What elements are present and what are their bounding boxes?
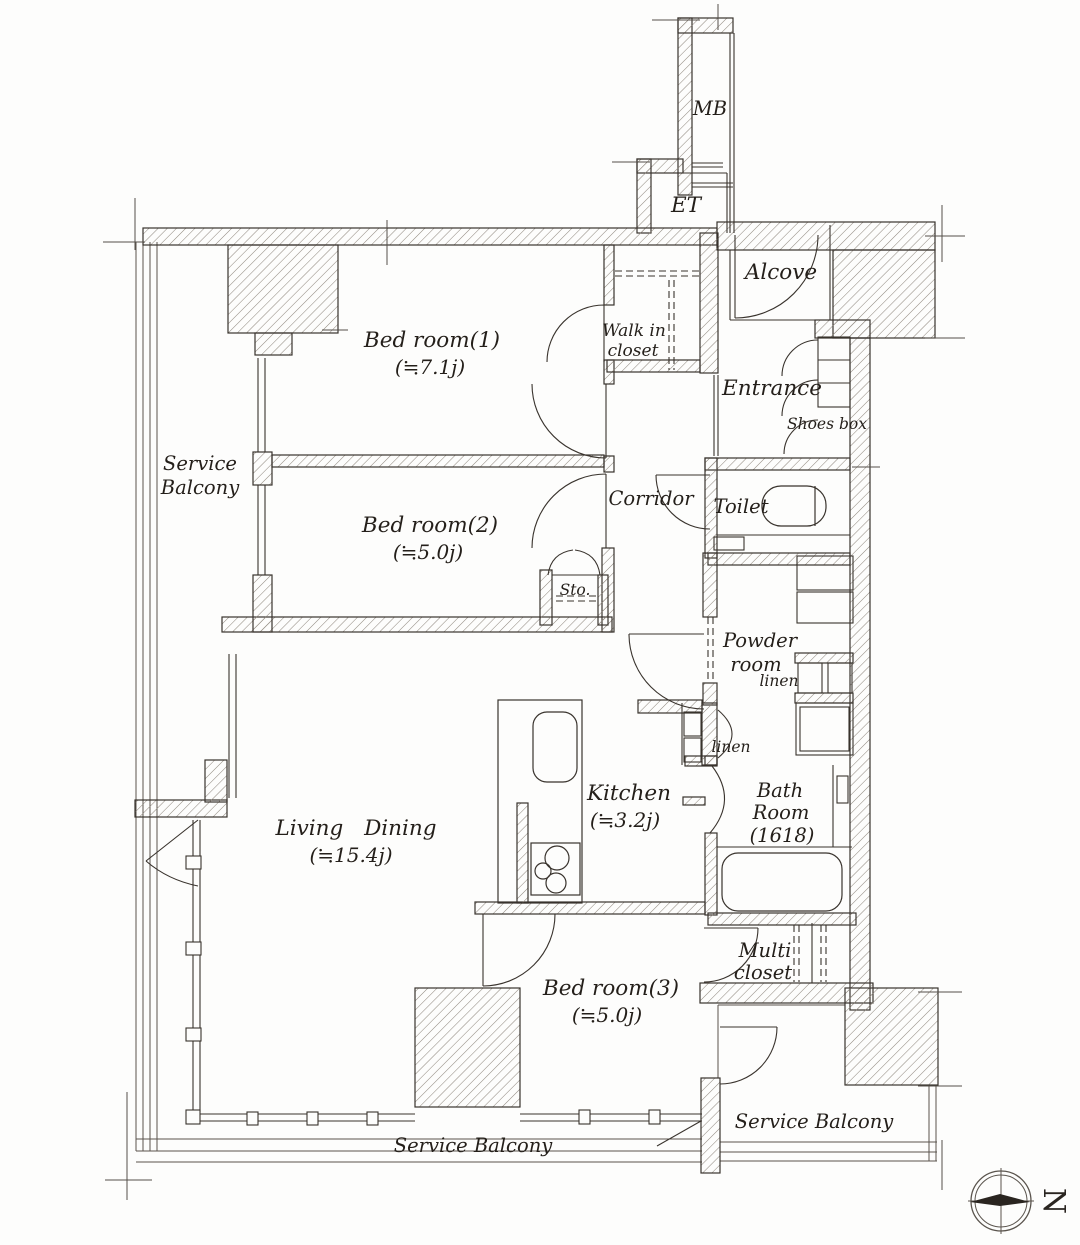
label-entrance: Entrance (721, 376, 822, 401)
bath-door (710, 766, 725, 833)
balcony-left-door (146, 820, 198, 886)
compass-needle (970, 1194, 1030, 1206)
label-storage: Sto. (560, 581, 591, 599)
wall-powder-west-b (703, 683, 717, 705)
wall-top-band (143, 228, 717, 245)
wall-powder-band2 (795, 693, 853, 703)
stove-burner (545, 846, 569, 870)
label-bedroom3-name: Bed room(3) (542, 976, 679, 1001)
label-bath-line3: (1618) (750, 824, 815, 847)
balcony-bottom-door (657, 1121, 701, 1146)
label-bedroom3-area: (≒5.0j) (572, 1003, 642, 1027)
label-bedroom1-name: Bed room(1) (363, 328, 500, 353)
wall-et-left (637, 159, 651, 233)
wall-storage-left (540, 570, 552, 625)
bedroom1-door (532, 384, 606, 458)
label-corridor: Corridor (608, 487, 695, 510)
label-linen-upper: linen (759, 672, 798, 690)
label-shoes-box: Shoes box (787, 415, 867, 433)
label-et: ET (670, 193, 703, 218)
label-bedroom1-area: (≒7.1j) (395, 355, 465, 379)
floor-plan-drawing: N MB ET Alcove Entrance Shoes box Bed ro… (0, 0, 1080, 1245)
kitchen-stove (531, 843, 580, 895)
label-service-balcony-right: Service Balcony (735, 1110, 895, 1133)
wall-balcony-seg2 (253, 575, 272, 632)
wall-corner-block (845, 988, 938, 1085)
label-alcove: Alcove (743, 260, 817, 285)
wall-balcony-right-left (701, 1078, 720, 1173)
label-living-area: (≒15.4j) (309, 843, 392, 867)
wall-balcony-bottom-v (205, 760, 227, 802)
stove-burner (546, 873, 566, 893)
walls (135, 18, 938, 1173)
label-wic-line1: Walk in (602, 321, 666, 341)
label-bedroom2-area: (≒5.0j) (393, 540, 463, 564)
balcony-right-door (720, 1027, 777, 1084)
label-kitchen-area: (≒3.2j) (590, 808, 660, 832)
wall-wic-entrance (700, 233, 718, 373)
label-bath-line1: Bath (756, 779, 803, 802)
wall-pier (415, 988, 520, 1107)
label-bedroom2-name: Bed room(2) (361, 513, 498, 538)
label-multi-line1: Multi (738, 939, 792, 962)
label-bath-line2: Room (752, 801, 810, 824)
wall-bed2-living (222, 617, 612, 632)
wall-topleft-block (228, 245, 338, 333)
label-service-balcony-left-line1: Service (163, 452, 237, 475)
label-wic-line2: closet (608, 341, 659, 361)
compass: N (968, 1168, 1071, 1234)
wall-topright-band (717, 222, 935, 250)
label-toilet: Toilet (713, 495, 768, 518)
wall-corridor-a (604, 245, 614, 305)
wall-kitchen-stub (517, 803, 528, 903)
wall-alcove-bottom (815, 320, 870, 338)
dimension-ticks (103, 4, 965, 1200)
label-service-balcony-left-line2: Balcony (160, 476, 240, 499)
wall-right (850, 338, 870, 1010)
toilet-bowl (762, 486, 826, 526)
wall-storage-right (598, 575, 608, 625)
wall-kitchen-ne (638, 700, 702, 713)
bedroom2-door (532, 474, 606, 548)
storage-doors (548, 550, 600, 575)
walkin-closet-door (547, 305, 604, 362)
label-linen-lower: linen (711, 738, 750, 756)
wall-bed3-top (475, 902, 705, 914)
label-living-name: Living Dining (274, 816, 436, 841)
kitchen-counter (498, 700, 582, 903)
wall-wic-bottom (607, 360, 700, 372)
wall-bath-bottom (708, 913, 856, 925)
wall-toilet-top (705, 458, 850, 470)
corridor-door (629, 634, 704, 709)
kitchen-sink (533, 712, 577, 782)
bathtub (722, 853, 842, 911)
compass-north-letter: N (1036, 1188, 1071, 1214)
label-mb: MB (692, 97, 727, 120)
wall-bath-west-a (705, 756, 717, 765)
label-service-balcony-bottom: Service Balcony (394, 1134, 554, 1157)
label-powder-line1: Powder (722, 629, 799, 652)
wall-powder-west-a (703, 553, 717, 617)
wall-bed1-bed2 (272, 455, 604, 467)
label-kitchen-name: Kitchen (586, 781, 671, 806)
wall-toilet-bottom (708, 553, 850, 565)
wall-bath-west-b (705, 833, 717, 915)
wall-balcony-seg1 (253, 452, 272, 485)
wall-kitchen-stub-e (683, 797, 705, 805)
label-multi-line2: closet (734, 961, 792, 984)
floor-plan: N MB ET Alcove Entrance Shoes box Bed ro… (0, 0, 1080, 1245)
wall-topleft-step (255, 333, 292, 355)
shoesbox-door (782, 340, 818, 376)
wall-powder-band1 (795, 653, 853, 663)
